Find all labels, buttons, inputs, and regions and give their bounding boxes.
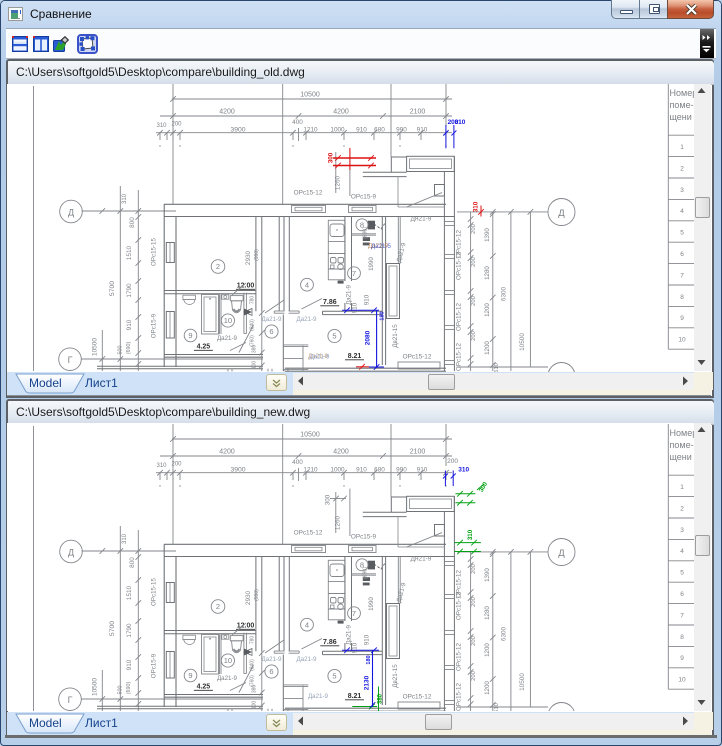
svg-text:200: 200 [447, 458, 458, 465]
svg-text:Да21-5: Да21-5 [371, 243, 392, 250]
svg-text:310: 310 [458, 467, 469, 474]
svg-text:Да21-9: Да21-9 [309, 353, 330, 360]
svg-text:180: 180 [380, 311, 386, 320]
svg-text:310: 310 [467, 529, 474, 540]
svg-text:310: 310 [455, 119, 466, 126]
svg-text:380: 380 [378, 693, 384, 704]
svg-text:300: 300 [478, 481, 490, 494]
svg-text:2130: 2130 [364, 675, 371, 690]
svg-text:2080: 2080 [365, 330, 372, 345]
svg-text:300: 300 [325, 494, 332, 505]
svg-text:310: 310 [473, 201, 480, 212]
svg-text:Да21-9: Да21-9 [308, 693, 329, 700]
svg-text:180: 180 [366, 655, 372, 664]
